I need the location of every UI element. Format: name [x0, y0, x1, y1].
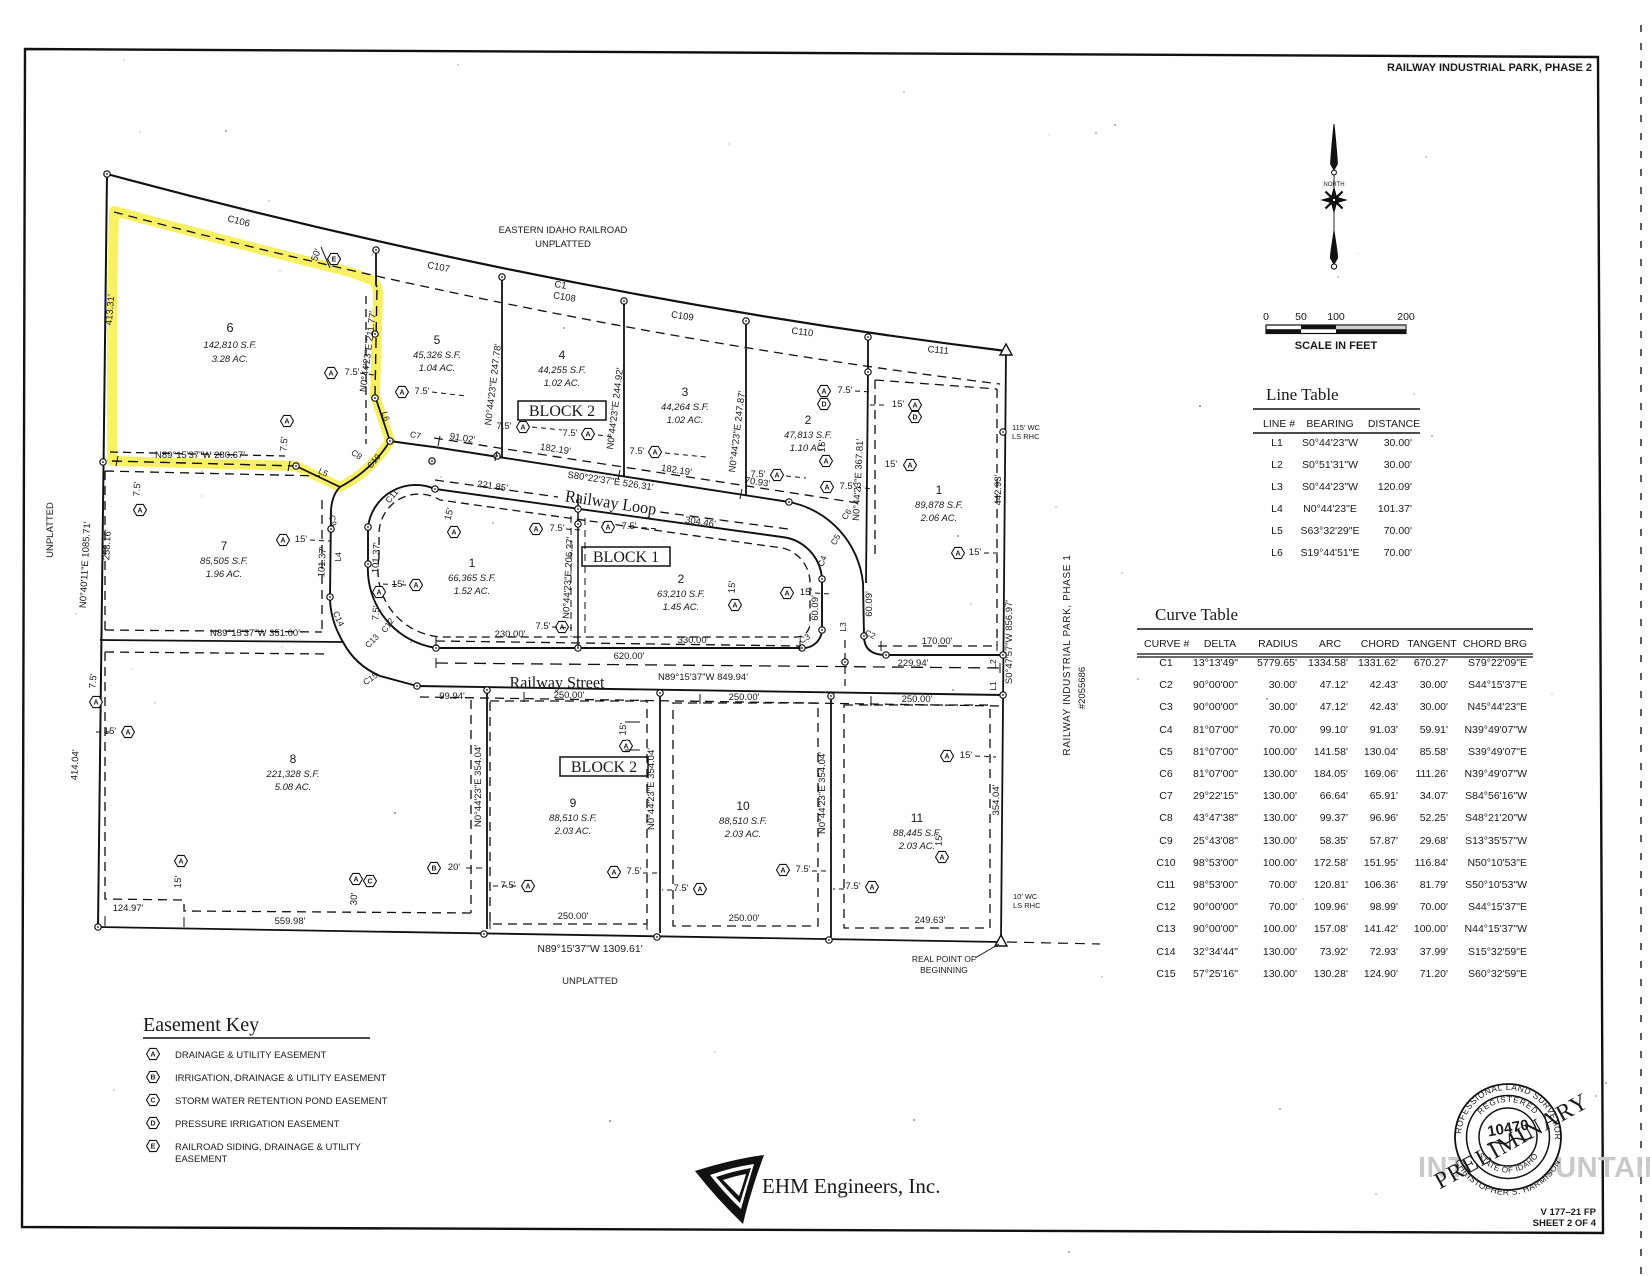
svg-text:2.03 AC.: 2.03 AC. — [724, 829, 762, 840]
svg-text:2.06 AC.: 2.06 AC. — [920, 513, 958, 524]
svg-text:47.12': 47.12' — [1320, 701, 1348, 713]
svg-text:98°53'00": 98°53'00" — [1193, 857, 1238, 869]
svg-text:250.00': 250.00' — [902, 694, 933, 705]
svg-text:30.00': 30.00' — [1420, 701, 1448, 713]
svg-text:47,813 S.F.: 47,813 S.F. — [784, 430, 832, 441]
svg-text:C1: C1 — [1159, 657, 1173, 669]
svg-text:99.94': 99.94' — [439, 691, 465, 702]
svg-text:RAILROAD SIDING, DRAINAGE &: RAILROAD SIDING, DRAINAGE & UTILITY — [175, 1142, 361, 1153]
svg-text:81.79': 81.79' — [1420, 879, 1448, 891]
svg-text:141.58': 141.58' — [1314, 746, 1348, 758]
svg-text:101.37': 101.37' — [370, 542, 383, 574]
svg-text:N0°44′23"E 354.04′: N0°44′23"E 354.04′ — [473, 745, 484, 827]
svg-text:130.00': 130.00' — [1263, 968, 1297, 980]
svg-text:60.09': 60.09' — [810, 595, 821, 621]
svg-text:200: 200 — [1397, 311, 1415, 323]
svg-text:184.05': 184.05' — [1314, 768, 1348, 780]
svg-text:L4: L4 — [1271, 503, 1283, 515]
svg-text:ARC: ARC — [1319, 638, 1342, 650]
svg-text:L3: L3 — [838, 622, 848, 632]
svg-text:V 177–21 FP: V 177–21 FP — [1541, 1207, 1597, 1218]
svg-text:8: 8 — [290, 752, 297, 766]
svg-text:S15°32'59"E: S15°32'59"E — [1468, 946, 1527, 958]
svg-text:C13: C13 — [1156, 923, 1175, 935]
svg-text:S0°51'31"W: S0°51'31"W — [1302, 459, 1358, 471]
svg-text:15': 15' — [960, 750, 973, 761]
svg-text:354.04': 354.04' — [991, 784, 1002, 815]
svg-text:50: 50 — [1295, 311, 1307, 323]
svg-text:C12: C12 — [1156, 901, 1175, 913]
svg-text:72.93': 72.93' — [1370, 946, 1398, 958]
svg-text:151.95': 151.95' — [1364, 857, 1398, 869]
svg-text:NORTH: NORTH — [1323, 182, 1344, 188]
svg-text:7.5': 7.5' — [562, 428, 577, 439]
svg-text:CHORD BRG: CHORD BRG — [1463, 638, 1527, 650]
svg-text:100.00': 100.00' — [1263, 746, 1297, 758]
svg-text:N0°44′23"E 354.04′: N0°44′23"E 354.04′ — [817, 752, 828, 834]
svg-text:37.99': 37.99' — [1420, 946, 1448, 958]
svg-text:S79°22'09"E: S79°22'09"E — [1468, 657, 1527, 669]
svg-text:57°25'16": 57°25'16" — [1193, 968, 1238, 980]
svg-text:TANGENT: TANGENT — [1407, 638, 1457, 650]
svg-text:BEARING: BEARING — [1306, 418, 1353, 430]
svg-text:85.58': 85.58' — [1420, 746, 1448, 758]
svg-text:98°53'00": 98°53'00" — [1193, 879, 1238, 891]
svg-text:1.52 AC.: 1.52 AC. — [454, 586, 491, 597]
svg-text:7.5': 7.5' — [414, 386, 429, 397]
svg-text:7.5': 7.5' — [278, 436, 290, 452]
svg-text:7.5': 7.5' — [837, 385, 852, 396]
svg-text:S44°15'37"E: S44°15'37"E — [1468, 679, 1527, 691]
svg-text:L1: L1 — [988, 681, 998, 691]
svg-text:Line Table: Line Table — [1266, 385, 1339, 404]
svg-text:S0°44'23"W: S0°44'23"W — [1302, 481, 1358, 493]
svg-text:4: 4 — [559, 348, 566, 362]
svg-text:BEGINNING: BEGINNING — [920, 965, 968, 975]
svg-text:44,255 S.F.: 44,255 S.F. — [538, 365, 586, 376]
svg-text:7.5': 7.5' — [496, 421, 511, 432]
svg-text:81°07'00": 81°07'00" — [1193, 768, 1238, 780]
svg-text:S0°44'23"W: S0°44'23"W — [1302, 437, 1358, 449]
svg-text:130.00': 130.00' — [1263, 812, 1297, 824]
svg-text:100.00': 100.00' — [1263, 923, 1297, 935]
svg-text:90°00'00": 90°00'00" — [1193, 923, 1238, 935]
svg-text:DRAINAGE & UTILITY EASEMENT: DRAINAGE & UTILITY EASEMENT — [175, 1050, 327, 1061]
svg-text:100: 100 — [1327, 311, 1345, 323]
svg-text:70.00': 70.00' — [1269, 879, 1297, 891]
svg-text:63,210 S.F.: 63,210 S.F. — [657, 589, 705, 600]
svg-text:N45°44'23"E: N45°44'23"E — [1467, 701, 1527, 713]
svg-text:L2: L2 — [1271, 459, 1283, 471]
svg-text:44,264 S.F.: 44,264 S.F. — [661, 402, 709, 413]
svg-text:REAL POINT OF: REAL POINT OF — [912, 954, 976, 964]
svg-text:101.37': 101.37' — [1378, 503, 1412, 515]
svg-text:101.37': 101.37' — [316, 546, 329, 578]
svg-text:81°07'00": 81°07'00" — [1193, 746, 1238, 758]
svg-text:7.5': 7.5' — [750, 469, 765, 480]
svg-text:S39°49'07"E: S39°49'07"E — [1468, 746, 1527, 758]
svg-text:250.00': 250.00' — [729, 913, 760, 924]
svg-text:2: 2 — [805, 413, 812, 427]
svg-text:130.28': 130.28' — [1314, 968, 1348, 980]
svg-text:52.25': 52.25' — [1420, 812, 1448, 824]
svg-text:1.02 AC.: 1.02 AC. — [544, 378, 581, 389]
svg-text:230.00': 230.00' — [495, 629, 526, 640]
svg-text:Easement Key: Easement Key — [143, 1014, 259, 1036]
svg-text:66,365 S.F.: 66,365 S.F. — [448, 573, 496, 584]
svg-text:6: 6 — [226, 320, 233, 335]
svg-text:1: 1 — [936, 483, 943, 497]
svg-text:7.5': 7.5' — [344, 367, 359, 378]
svg-text:C11: C11 — [1157, 879, 1176, 891]
svg-text:66.64': 66.64' — [1320, 790, 1348, 802]
svg-text:45,326 S.F.: 45,326 S.F. — [413, 350, 461, 361]
svg-text:L5: L5 — [1271, 525, 1283, 537]
svg-text:N0°44'23"E: N0°44'23"E — [1303, 503, 1357, 515]
svg-text:15': 15' — [617, 722, 629, 735]
svg-text:C14: C14 — [1156, 946, 1175, 958]
svg-text:559.98': 559.98' — [275, 916, 306, 927]
svg-text:70.00': 70.00' — [1420, 901, 1448, 913]
svg-text:N89°15′37"W 849.94′: N89°15′37"W 849.94′ — [658, 672, 748, 683]
svg-text:130.00': 130.00' — [1263, 835, 1297, 847]
svg-text:DISTANCE: DISTANCE — [1368, 418, 1420, 430]
svg-text:UNPLATTED: UNPLATTED — [45, 502, 56, 558]
svg-text:258.16': 258.16' — [101, 529, 114, 561]
svg-text:9: 9 — [570, 796, 577, 810]
svg-text:20': 20' — [448, 862, 461, 873]
svg-text:116.84': 116.84' — [1415, 857, 1448, 869]
svg-text:29°22'15": 29°22'15" — [1193, 790, 1238, 802]
svg-text:100.00': 100.00' — [1414, 923, 1448, 935]
svg-text:7.5': 7.5' — [370, 605, 382, 621]
svg-text:10: 10 — [736, 799, 750, 813]
svg-text:106.36': 106.36' — [1364, 879, 1398, 891]
svg-text:C2: C2 — [1159, 679, 1173, 691]
svg-text:RAILWAY INDUSTRIAL PARK, PH: RAILWAY INDUSTRIAL PARK, PHASE 1 — [1062, 554, 1073, 755]
svg-text:7.5': 7.5' — [535, 621, 550, 632]
svg-text:120.81': 120.81' — [1314, 879, 1348, 891]
svg-text:S44°15'37"E: S44°15'37"E — [1468, 901, 1527, 913]
svg-text:LS RHC: LS RHC — [1013, 901, 1041, 910]
svg-text:88,510 S.F.: 88,510 S.F. — [549, 813, 597, 824]
svg-text:C8: C8 — [1159, 812, 1173, 824]
svg-text:47.12': 47.12' — [1320, 679, 1348, 691]
svg-text:30.00': 30.00' — [1384, 459, 1412, 471]
svg-text:1.02 AC.: 1.02 AC. — [667, 415, 704, 426]
svg-text:124.90': 124.90' — [1364, 968, 1398, 980]
svg-text:13°13'49": 13°13'49" — [1193, 657, 1238, 669]
svg-text:250.00': 250.00' — [558, 911, 589, 922]
svg-text:BLOCK 2: BLOCK 2 — [571, 759, 637, 776]
svg-text:88,510 S.F.: 88,510 S.F. — [719, 816, 767, 827]
svg-text:S19°44'51"E: S19°44'51"E — [1301, 547, 1360, 559]
svg-text:EASTERN IDAHO RAILROAD: EASTERN IDAHO RAILROAD — [499, 225, 628, 236]
svg-text:34.07': 34.07' — [1420, 790, 1448, 802]
svg-text:7.5': 7.5' — [629, 446, 644, 457]
svg-text:90°00'00": 90°00'00" — [1193, 701, 1238, 713]
svg-text:99.37': 99.37' — [1320, 812, 1348, 824]
svg-text:30.00': 30.00' — [1384, 437, 1412, 449]
svg-text:S63°32'29"E: S63°32'29"E — [1301, 525, 1360, 537]
svg-text:90°00'00": 90°00'00" — [1193, 679, 1238, 691]
svg-text:7.5': 7.5' — [131, 481, 143, 497]
svg-text:43°47'38": 43°47'38" — [1193, 812, 1238, 824]
svg-text:15': 15' — [933, 833, 945, 846]
svg-text:N50°10'53"E: N50°10'53"E — [1467, 857, 1527, 869]
svg-text:S48°21'20"W: S48°21'20"W — [1465, 812, 1527, 824]
svg-text:7: 7 — [221, 539, 228, 553]
svg-text:11: 11 — [911, 811, 924, 825]
svg-text:330.00': 330.00' — [678, 635, 709, 646]
svg-text:L4: L4 — [333, 552, 343, 562]
svg-text:59.91': 59.91' — [1420, 724, 1448, 736]
svg-text:71.20': 71.20' — [1420, 968, 1448, 980]
svg-text:2: 2 — [678, 572, 685, 586]
svg-text:3.28 AC.: 3.28 AC. — [212, 354, 249, 365]
svg-text:S50°10'53"W: S50°10'53"W — [1465, 879, 1527, 891]
svg-text:RADIUS: RADIUS — [1258, 638, 1298, 650]
svg-text:CURVE #: CURVE # — [1144, 638, 1189, 650]
svg-text:15': 15' — [295, 534, 308, 545]
svg-text:85,505 S.F.: 85,505 S.F. — [200, 556, 248, 567]
svg-text:57.87': 57.87' — [1370, 835, 1398, 847]
svg-text:130.04': 130.04' — [1364, 746, 1398, 758]
svg-text:STORM WATER RETENTION POND: STORM WATER RETENTION POND EASEMENT — [175, 1096, 388, 1107]
svg-text:C15: C15 — [1156, 968, 1175, 980]
svg-text:5: 5 — [434, 333, 441, 347]
svg-text:70.00': 70.00' — [1384, 547, 1412, 559]
svg-text:141.42': 141.42' — [1364, 923, 1398, 935]
svg-text:89,878 S.F.: 89,878 S.F. — [915, 500, 963, 511]
svg-text:32°34'44": 32°34'44" — [1193, 946, 1238, 958]
svg-text:PRESSURE IRRIGATION EASEMENT: PRESSURE IRRIGATION EASEMENT — [175, 1119, 340, 1130]
svg-text:7.5': 7.5' — [626, 866, 641, 877]
svg-text:S13°35'57"W: S13°35'57"W — [1465, 835, 1527, 847]
svg-text:15': 15' — [726, 580, 738, 593]
svg-text:115′ WC: 115′ WC — [1012, 423, 1041, 432]
svg-text:249.63': 249.63' — [915, 915, 946, 926]
svg-text:C9: C9 — [1159, 835, 1173, 847]
svg-text:58.35': 58.35' — [1320, 835, 1348, 847]
svg-text:250.00': 250.00' — [554, 690, 585, 701]
svg-text:BLOCK 1: BLOCK 1 — [593, 549, 659, 566]
svg-text:L3: L3 — [1271, 481, 1283, 493]
svg-text:42.43': 42.43' — [1370, 679, 1398, 691]
svg-text:5779.65': 5779.65' — [1257, 657, 1297, 669]
svg-text:442.93': 442.93' — [993, 474, 1004, 505]
svg-text:N89°15′37"W 280.67′: N89°15′37"W 280.67′ — [155, 450, 245, 461]
svg-text:7.5': 7.5' — [795, 864, 810, 875]
svg-text:170.00': 170.00' — [922, 636, 953, 647]
svg-text:CHORD: CHORD — [1361, 638, 1400, 650]
svg-text:Curve Table: Curve Table — [1155, 605, 1238, 624]
svg-text:100.00': 100.00' — [1263, 857, 1297, 869]
svg-text:UNPLATTED: UNPLATTED — [562, 976, 618, 987]
svg-text:EHM Engineers, Inc.: EHM Engineers, Inc. — [762, 1174, 940, 1198]
svg-text:1331.62': 1331.62' — [1358, 657, 1398, 669]
svg-text:81°07'00": 81°07'00" — [1193, 724, 1238, 736]
svg-text:L1: L1 — [1271, 437, 1283, 449]
svg-text:C7: C7 — [1159, 790, 1173, 802]
svg-text:7.5': 7.5' — [845, 881, 860, 892]
svg-text:C6: C6 — [1159, 768, 1173, 780]
svg-text:124.97': 124.97' — [113, 903, 144, 914]
svg-text:73.92': 73.92' — [1320, 946, 1348, 958]
svg-text:15': 15' — [816, 439, 828, 452]
svg-text:1334.58': 1334.58' — [1308, 657, 1348, 669]
svg-text:111.26': 111.26' — [1415, 768, 1448, 780]
svg-text:C10: C10 — [1156, 857, 1175, 869]
svg-text:7.5': 7.5' — [549, 523, 564, 534]
svg-text:7.5': 7.5' — [673, 883, 688, 894]
svg-text:15': 15' — [892, 399, 905, 410]
svg-text:LS RHC: LS RHC — [1012, 432, 1040, 441]
svg-text:30': 30' — [348, 892, 360, 905]
svg-text:S60°32'59"E: S60°32'59"E — [1468, 968, 1527, 980]
svg-text:157.08': 157.08' — [1314, 923, 1348, 935]
svg-text:UNPLATTED: UNPLATTED — [535, 239, 591, 250]
svg-text:DELTA: DELTA — [1204, 638, 1236, 650]
svg-text:109.96': 109.96' — [1314, 901, 1348, 913]
svg-text:98.99': 98.99' — [1370, 901, 1398, 913]
svg-text:L2: L2 — [988, 659, 998, 669]
svg-text:BLOCK 2: BLOCK 2 — [529, 403, 595, 420]
svg-text:250.00': 250.00' — [729, 692, 760, 703]
svg-text:25°43'08": 25°43'08" — [1193, 835, 1238, 847]
svg-text:C7: C7 — [409, 429, 422, 441]
svg-text:N44°15'37"W: N44°15'37"W — [1465, 923, 1528, 935]
svg-text:L6: L6 — [1271, 547, 1283, 559]
svg-text:1.45 AC.: 1.45 AC. — [663, 602, 700, 613]
svg-text:10′ WC: 10′ WC — [1013, 892, 1038, 901]
svg-text:15': 15' — [885, 459, 898, 470]
svg-text:99.10': 99.10' — [1320, 724, 1348, 736]
svg-text:229.94': 229.94' — [898, 658, 929, 669]
svg-text:130.00': 130.00' — [1263, 946, 1297, 958]
svg-text:120.09': 120.09' — [1378, 481, 1412, 493]
svg-text:N89°15′37"W 351.00′: N89°15′37"W 351.00′ — [210, 628, 300, 639]
svg-text:15': 15' — [172, 875, 184, 888]
svg-text:#2055686: #2055686 — [1077, 667, 1088, 709]
svg-text:S0°47′57"W 856.97′: S0°47′57"W 856.97′ — [1004, 600, 1015, 684]
svg-text:N39°49'07"W: N39°49'07"W — [1465, 724, 1528, 736]
svg-text:EASEMENT: EASEMENT — [175, 1154, 227, 1165]
svg-text:3: 3 — [682, 385, 689, 399]
svg-text:SCALE IN FEET: SCALE IN FEET — [1295, 340, 1378, 352]
svg-text:70.00': 70.00' — [1269, 901, 1297, 913]
svg-text:70.00': 70.00' — [1269, 724, 1297, 736]
svg-text:SHEET 2 OF 4: SHEET 2 OF 4 — [1533, 1218, 1597, 1229]
svg-text:N89°15′37"W 1309.61′: N89°15′37"W 1309.61′ — [537, 943, 642, 955]
svg-text:30.00': 30.00' — [1420, 679, 1448, 691]
svg-text:172.58': 172.58' — [1314, 857, 1348, 869]
svg-text:LINE #: LINE # — [1263, 418, 1295, 430]
svg-text:C9: C9 — [327, 514, 339, 527]
svg-text:7.5': 7.5' — [87, 673, 99, 689]
svg-text:15': 15' — [800, 587, 813, 598]
svg-text:42.43': 42.43' — [1370, 701, 1398, 713]
svg-text:7.5': 7.5' — [621, 521, 636, 532]
svg-text:1: 1 — [469, 556, 476, 570]
svg-text:RAILWAY INDUSTRIAL PARK, PHASE: RAILWAY INDUSTRIAL PARK, PHASE 2 — [1387, 62, 1592, 74]
svg-text:169.06': 169.06' — [1364, 768, 1398, 780]
svg-text:91.03': 91.03' — [1370, 724, 1398, 736]
svg-text:1.96 AC.: 1.96 AC. — [206, 569, 243, 580]
svg-text:2.03 AC.: 2.03 AC. — [554, 826, 592, 837]
svg-text:C111: C111 — [927, 344, 949, 357]
svg-text:221,328 S.F.: 221,328 S.F. — [265, 769, 319, 780]
svg-text:IRRIGATION, DRAINAGE & UTIL: IRRIGATION, DRAINAGE & UTILITY EASEMENT — [175, 1073, 387, 1084]
svg-text:2.03 AC.: 2.03 AC. — [898, 841, 936, 852]
svg-text:620.00': 620.00' — [614, 651, 645, 662]
svg-text:142,810 S.F.: 142,810 S.F. — [203, 340, 256, 351]
svg-text:414.04': 414.04' — [69, 749, 82, 781]
svg-text:15': 15' — [969, 547, 982, 558]
svg-text:29.68': 29.68' — [1420, 835, 1448, 847]
svg-text:S84°56'16"W: S84°56'16"W — [1465, 790, 1527, 802]
svg-text:30.00': 30.00' — [1269, 679, 1297, 691]
svg-text:5.08 AC.: 5.08 AC. — [275, 782, 312, 793]
svg-text:670.27': 670.27' — [1414, 657, 1448, 669]
svg-text:30.00': 30.00' — [1269, 701, 1297, 713]
svg-text:7.5': 7.5' — [839, 481, 854, 492]
svg-text:60.09': 60.09' — [864, 591, 875, 617]
svg-text:C4: C4 — [1159, 724, 1173, 736]
svg-text:96.96': 96.96' — [1370, 812, 1398, 824]
svg-text:C5: C5 — [1159, 746, 1173, 758]
svg-text:90°00'00": 90°00'00" — [1193, 901, 1238, 913]
svg-text:0: 0 — [1263, 311, 1269, 323]
svg-text:130.00': 130.00' — [1263, 768, 1297, 780]
svg-text:C3: C3 — [1159, 701, 1173, 713]
svg-text:N0°44′23"E 354.04′: N0°44′23"E 354.04′ — [646, 748, 657, 830]
svg-text:130.00': 130.00' — [1263, 790, 1297, 802]
svg-text:70.00': 70.00' — [1384, 525, 1412, 537]
svg-text:N39°49'07"W: N39°49'07"W — [1465, 768, 1528, 780]
svg-text:1.04 AC.: 1.04 AC. — [419, 363, 456, 374]
svg-text:65.91': 65.91' — [1370, 790, 1398, 802]
